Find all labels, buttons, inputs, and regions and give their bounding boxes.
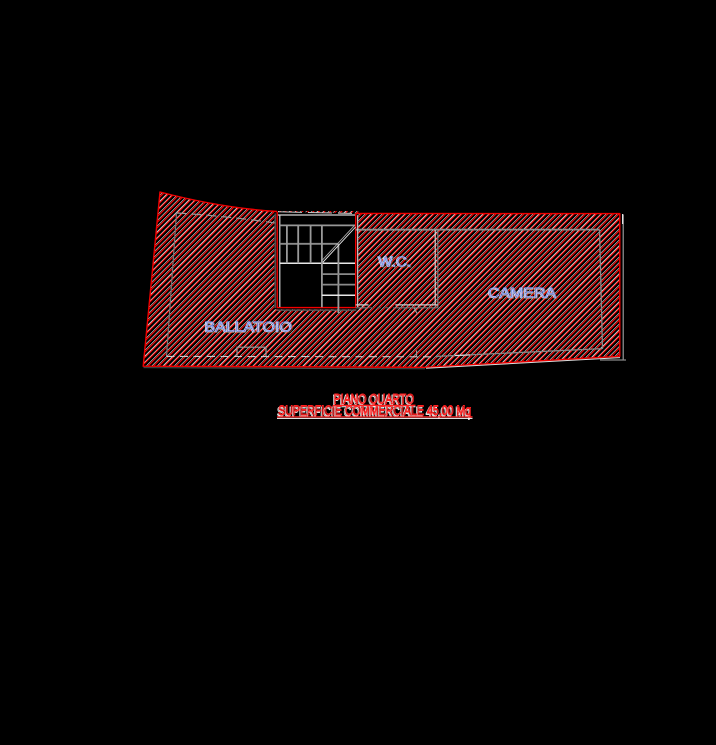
svg-text:SUPERFICIE COMMERCIALE 45,00 M: SUPERFICIE COMMERCIALE 45,00 Mq [278,403,471,418]
svg-text:W.C.: W.C. [379,255,412,271]
svg-text:CAMERA: CAMERA [488,286,557,302]
svg-text:BALLATOIO: BALLATOIO [205,320,293,336]
